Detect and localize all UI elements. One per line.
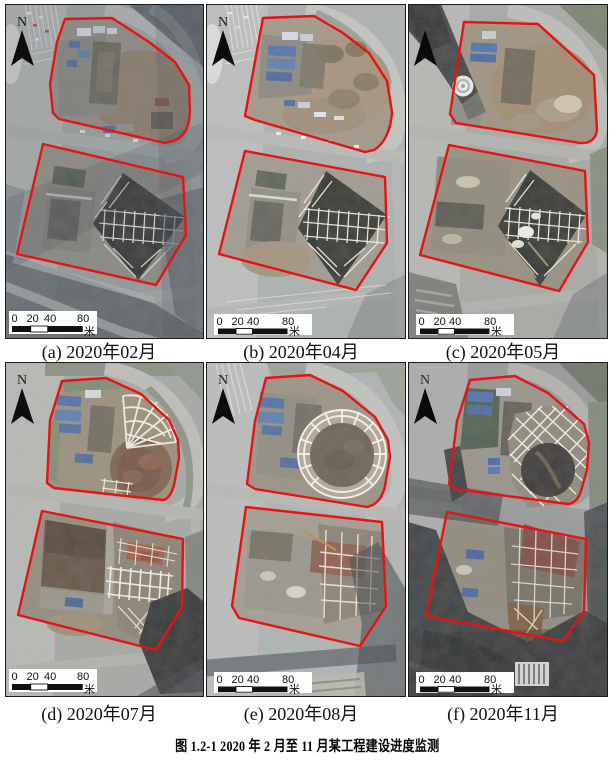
- svg-text:米: 米: [491, 325, 502, 338]
- svg-text:20: 20: [232, 674, 244, 686]
- svg-text:米: 米: [289, 325, 300, 338]
- svg-text:米: 米: [84, 683, 95, 696]
- svg-text:0: 0: [217, 316, 223, 328]
- svg-text:20: 20: [232, 316, 244, 328]
- svg-text:N: N: [218, 373, 228, 388]
- svg-text:40: 40: [44, 313, 56, 325]
- svg-text:80: 80: [77, 671, 89, 683]
- svg-text:40: 40: [247, 316, 259, 328]
- svg-text:米: 米: [491, 683, 502, 696]
- svg-text:N: N: [17, 373, 27, 388]
- svg-text:N: N: [17, 15, 27, 30]
- svg-text:20: 20: [27, 671, 39, 683]
- svg-text:20: 20: [27, 313, 39, 325]
- svg-text:0: 0: [12, 313, 18, 325]
- svg-text:40: 40: [247, 674, 259, 686]
- svg-text:0: 0: [217, 674, 223, 686]
- svg-text:米: 米: [84, 325, 95, 338]
- svg-text:米: 米: [289, 683, 300, 696]
- svg-text:N: N: [420, 373, 430, 388]
- svg-text:20: 20: [434, 316, 446, 328]
- svg-text:80: 80: [77, 313, 89, 325]
- svg-text:0: 0: [12, 671, 18, 683]
- svg-text:0: 0: [419, 316, 425, 328]
- svg-text:20: 20: [434, 674, 446, 686]
- svg-text:N: N: [218, 15, 228, 30]
- svg-text:0: 0: [419, 674, 425, 686]
- svg-text:40: 40: [449, 674, 461, 686]
- svg-text:40: 40: [44, 671, 56, 683]
- svg-text:40: 40: [449, 316, 461, 328]
- svg-text:N: N: [420, 15, 430, 30]
